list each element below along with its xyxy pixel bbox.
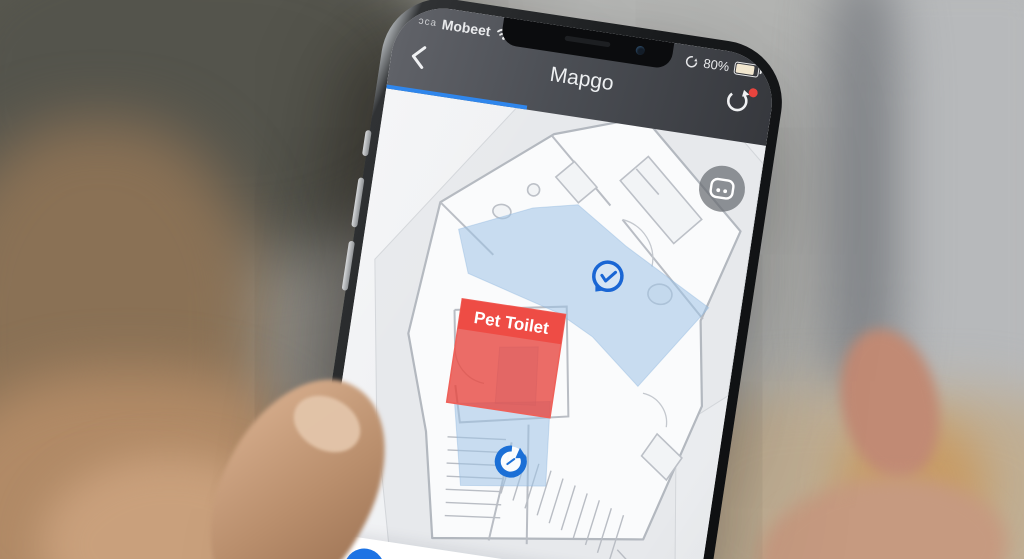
volume-down-button — [342, 241, 355, 291]
background-chair-shadow — [826, 0, 900, 410]
battery-group: 80% — [684, 53, 760, 79]
background-chair — [845, 0, 1024, 450]
carrier-label: Mobeet — [441, 16, 492, 39]
battery-fill — [736, 64, 755, 76]
rotation-lock-icon — [684, 53, 700, 69]
background-floor-highlight — [838, 415, 988, 555]
volume-up-button — [351, 177, 364, 227]
photo-scene: ɔca Mobeet 10:30 AM — [0, 0, 1024, 559]
refresh-button[interactable] — [719, 83, 760, 124]
refresh-icon — [720, 83, 754, 117]
front-camera — [635, 45, 645, 55]
battery-percent: 80% — [702, 56, 730, 75]
map-canvas[interactable]: Pet Toilet — [268, 88, 766, 559]
notification-dot — [748, 88, 758, 98]
robot-face-icon — [705, 173, 739, 205]
mute-switch — [362, 130, 372, 157]
hand-knuckle — [40, 455, 300, 559]
no-go-zone[interactable]: Pet Toilet — [447, 299, 566, 418]
fingertip-right-lower — [751, 465, 1015, 559]
battery-tip — [759, 69, 762, 74]
battery-icon — [733, 61, 760, 78]
phone-device: ɔca Mobeet 10:30 AM — [256, 0, 790, 559]
floor-plan: Pet Toilet — [308, 88, 765, 559]
pet-icon — [351, 555, 378, 559]
pet-mode-button[interactable] — [341, 546, 387, 559]
hand-arm — [0, 120, 260, 550]
fingertip-right-upper — [827, 320, 953, 489]
speaker-grille — [564, 36, 610, 48]
hand-palm — [0, 370, 330, 559]
carrier-prefix: ɔca — [418, 15, 438, 29]
